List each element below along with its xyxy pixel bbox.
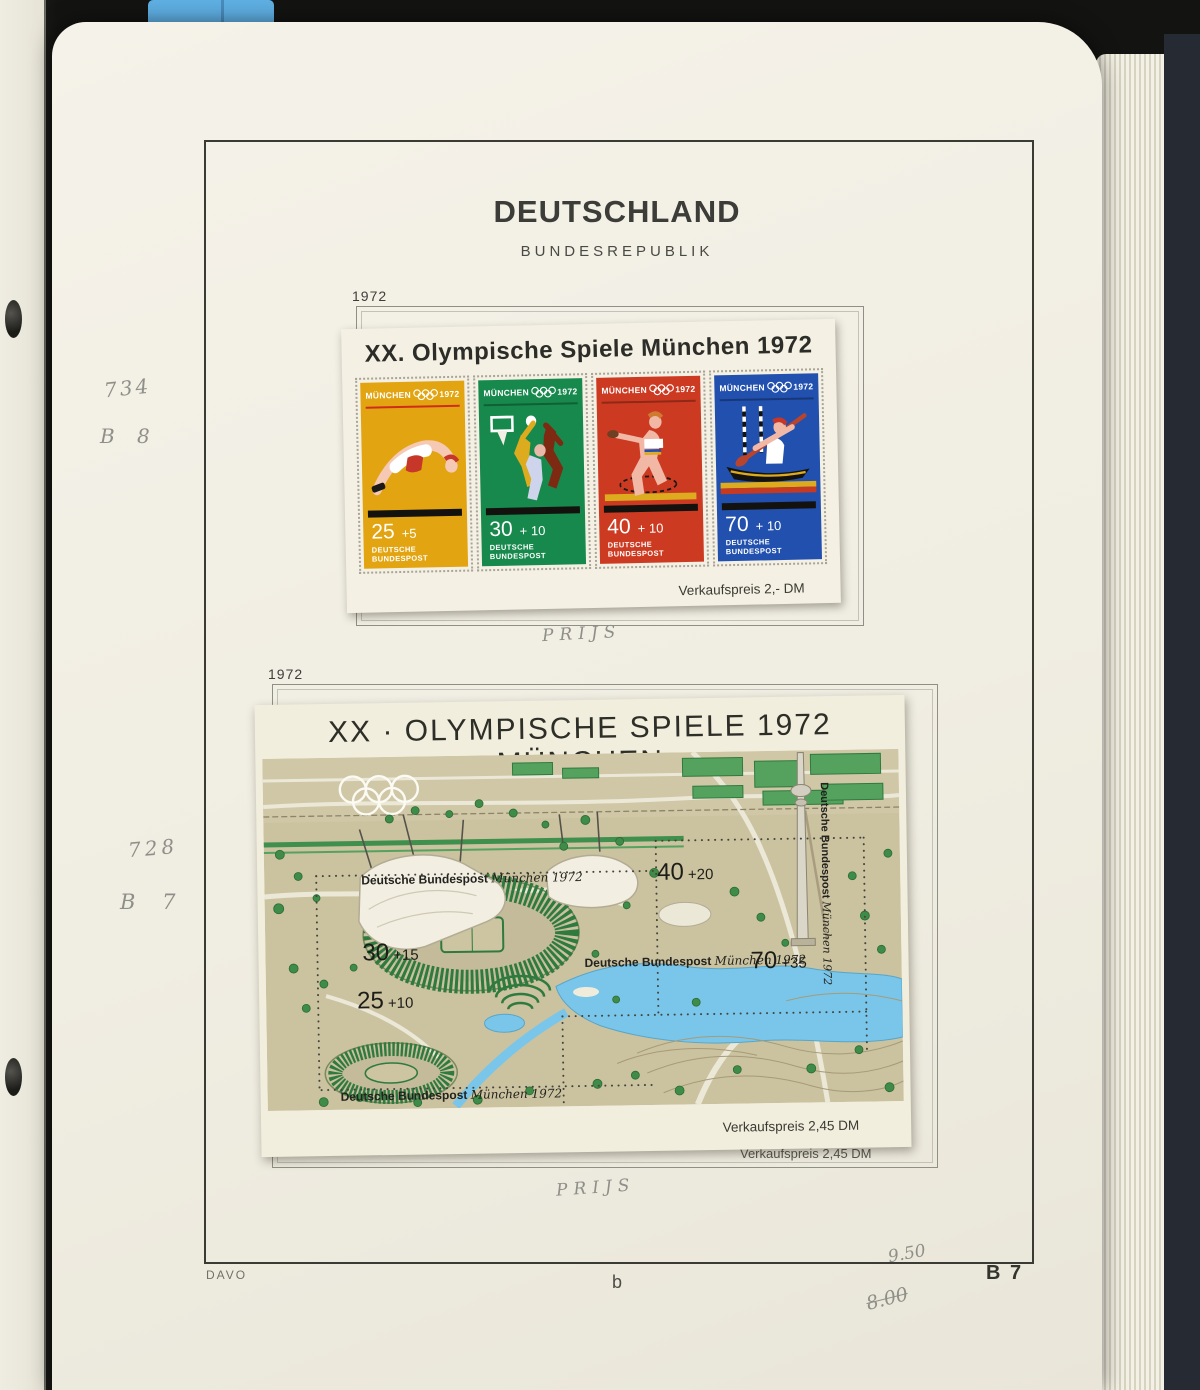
- olympic-rings-icon: [765, 379, 794, 396]
- stamp3-post: DEUTSCHE BUNDESPOST: [600, 538, 704, 564]
- stamp2-post: DEUTSCHE BUNDESPOST: [482, 540, 586, 566]
- stamp-25pf-high-jump: MÜNCHEN 1972: [360, 381, 468, 569]
- olympic-rings-icon: [529, 384, 558, 401]
- swim-hall: [659, 902, 711, 927]
- block2-pencil-catalog-number: 728: [127, 834, 179, 862]
- stamp1-value: 25: [371, 520, 395, 544]
- stamp2-year: 1972: [557, 386, 577, 396]
- stamp4-city: MÜNCHEN: [719, 382, 765, 393]
- stamp2-city: MÜNCHEN: [483, 387, 529, 398]
- page-content: DEUTSCHLAND BUNDESREPUBLIK 1972 734 B 8 …: [0, 0, 1200, 1390]
- stamp2-surcharge: + 10: [520, 523, 546, 539]
- stamp1-year: 1972: [439, 389, 459, 399]
- stamp4-surcharge: + 10: [755, 518, 781, 534]
- stamp-40pf-discus: MÜNCHEN 1972: [596, 376, 704, 564]
- stamp3-year: 1972: [675, 384, 695, 394]
- stamp4-post: DEUTSCHE BUNDESPOST: [718, 535, 822, 561]
- block1-pencil-block-number: B 8: [100, 424, 158, 448]
- basketball-illustration: [479, 404, 585, 508]
- sheet2-value-70-35: 70+35: [750, 946, 807, 975]
- stamp1-city: MÜNCHEN: [365, 390, 411, 401]
- stamp4-year: 1972: [793, 381, 813, 391]
- page-title: DEUTSCHLAND: [204, 194, 1030, 230]
- block1-pencil-note: PRIJS: [542, 622, 622, 646]
- sheet1-stamp-row: MÜNCHEN 1972: [360, 373, 822, 579]
- stamp1-post: DEUTSCHE BUNDESPOST: [364, 543, 468, 569]
- discus-illustration: [597, 402, 703, 506]
- stamp1-surcharge: +5: [402, 526, 417, 541]
- stamp4-value: 70: [725, 513, 749, 537]
- sheet2-sale-price: Verkaufspreis 2,45 DM: [722, 1118, 859, 1135]
- block2-year-label: 1972: [268, 666, 303, 682]
- olympic-park-map: [262, 749, 903, 1111]
- souvenir-sheet-1972-sports: XX. Olympische Spiele München 1972 MÜNCH…: [341, 319, 841, 613]
- stamp3-surcharge: + 10: [638, 521, 664, 537]
- stamp3-value: 40: [607, 515, 631, 539]
- high-jump-illustration: [361, 407, 467, 511]
- block1-year-label: 1972: [352, 288, 387, 304]
- album-photo: DEUTSCHLAND BUNDESREPUBLIK 1972 734 B 8 …: [0, 0, 1200, 1390]
- sheet1-sale-price: Verkaufspreis 2,- DM: [678, 581, 804, 599]
- sheet2-value-40-20: 40+20: [657, 858, 714, 887]
- sheet1-title: XX. Olympische Spiele München 1972: [341, 331, 835, 369]
- olympic-rings-icon: [647, 381, 676, 398]
- souvenir-sheet-olympic-park: XX · OLYMPISCHE SPIELE 1972 MÜNCHEN: [254, 695, 911, 1157]
- page-code: B 7: [986, 1262, 1023, 1285]
- stamp-30pf-basketball: MÜNCHEN 1972: [478, 378, 586, 566]
- olympic-rings-icon: [411, 386, 440, 403]
- block2-pencil-block-number: B 7: [120, 890, 185, 914]
- sheet2-value-25-10: 25+10: [357, 987, 414, 1016]
- stamp3-city: MÜNCHEN: [601, 385, 647, 396]
- page-subtitle: BUNDESREPUBLIK: [204, 243, 1030, 260]
- sheet2-value-30-15: 30+15: [362, 939, 419, 968]
- canoe-slalom-illustration: [715, 399, 821, 503]
- stamp-70pf-canoe: MÜNCHEN 1972: [714, 373, 822, 561]
- stamp2-value: 30: [489, 518, 513, 542]
- block1-pencil-catalog-number: 734: [103, 374, 152, 403]
